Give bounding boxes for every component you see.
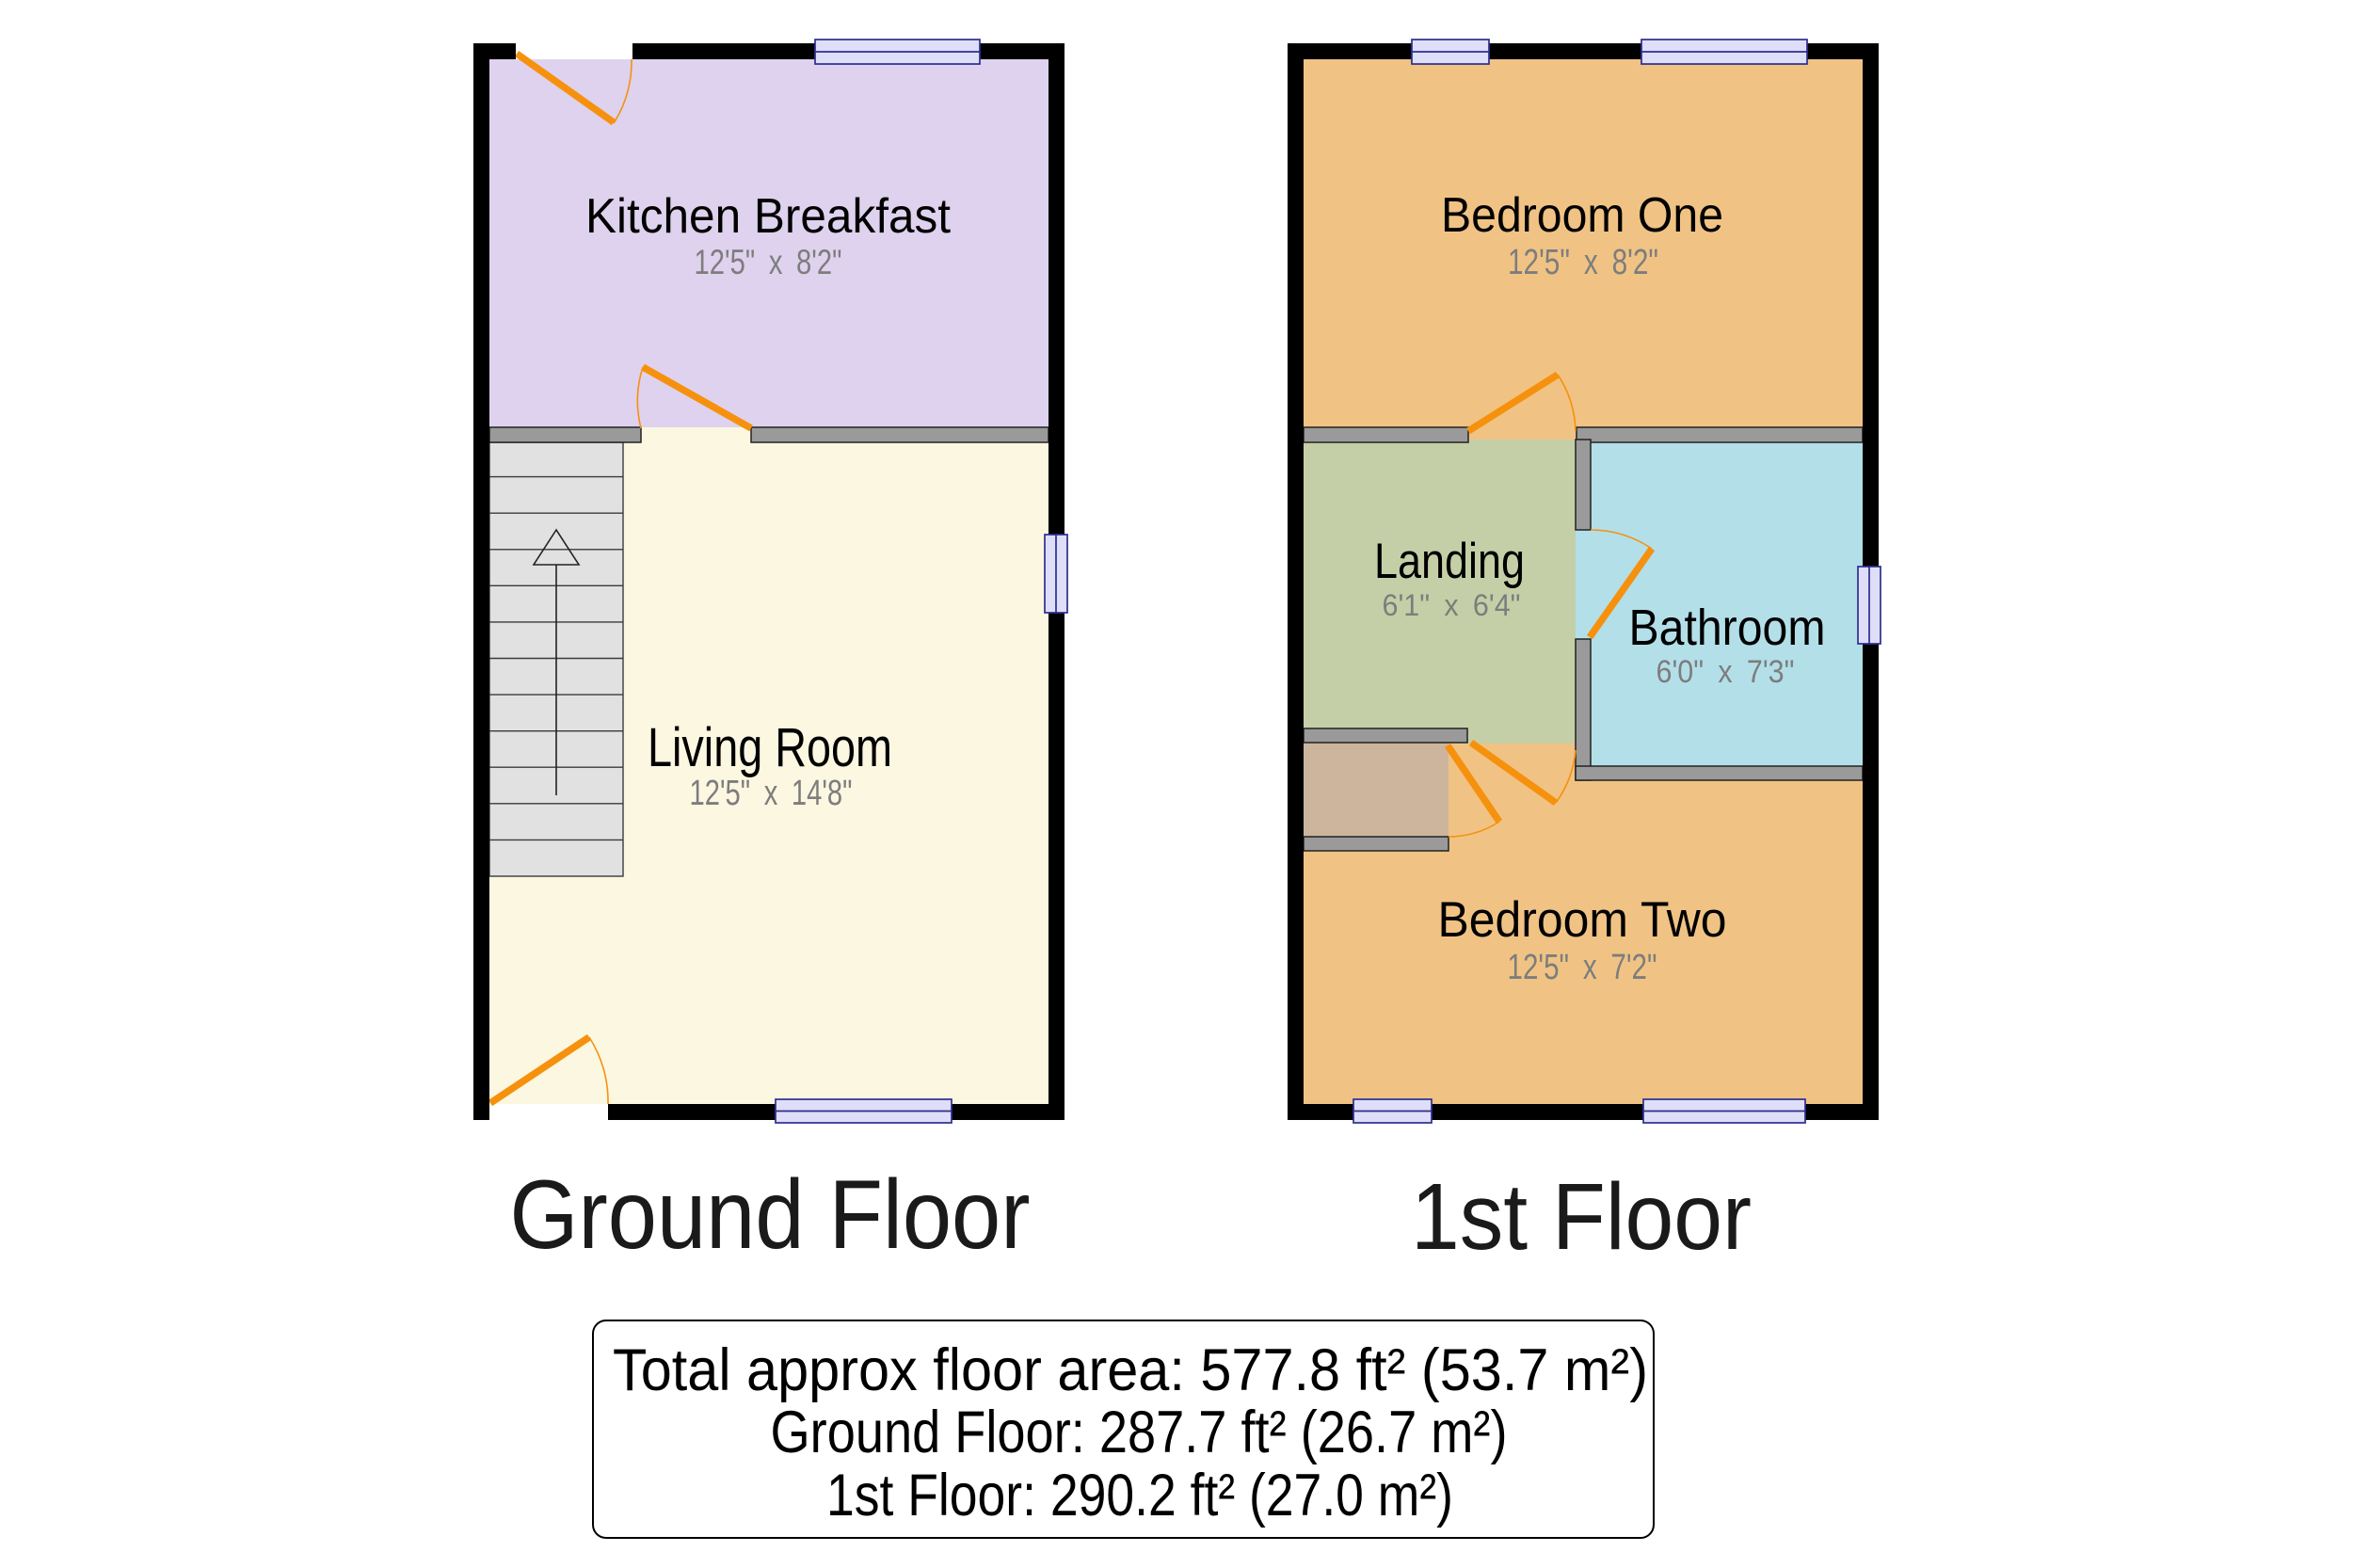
svg-text:Ground Floor: Ground Floor: [510, 1160, 1031, 1270]
svg-text:Bathroom: Bathroom: [1629, 600, 1826, 656]
svg-text:Kitchen Breakfast: Kitchen Breakfast: [585, 189, 952, 244]
svg-text:12'5" x 7'2": 12'5" x 7'2": [1508, 948, 1657, 987]
svg-text:12'5" x 8'2": 12'5" x 8'2": [1508, 243, 1658, 282]
svg-text:Bedroom One: Bedroom One: [1441, 188, 1723, 243]
svg-text:6'1" x 6'4": 6'1" x 6'4": [1383, 588, 1521, 622]
svg-text:Bedroom Two: Bedroom Two: [1438, 892, 1727, 948]
svg-text:Living Room: Living Room: [648, 717, 892, 778]
svg-text:Total approx floor area: 577.8: Total approx floor area: 577.8 ft² (53.7…: [613, 1337, 1648, 1403]
svg-text:1st Floor: 1st Floor: [1411, 1164, 1752, 1270]
svg-text:12'5" x 8'2": 12'5" x 8'2": [695, 243, 842, 281]
svg-text:Ground Floor: 287.7 ft² (26.7: Ground Floor: 287.7 ft² (26.7 m²): [771, 1400, 1508, 1465]
svg-text:Landing: Landing: [1374, 534, 1525, 589]
svg-text:12'5" x 14'8": 12'5" x 14'8": [690, 774, 853, 813]
svg-text:6'0" x 7'3": 6'0" x 7'3": [1657, 654, 1795, 690]
svg-text:1st Floor: 290.2 ft² (27.0 m²): 1st Floor: 290.2 ft² (27.0 m²): [826, 1463, 1453, 1528]
